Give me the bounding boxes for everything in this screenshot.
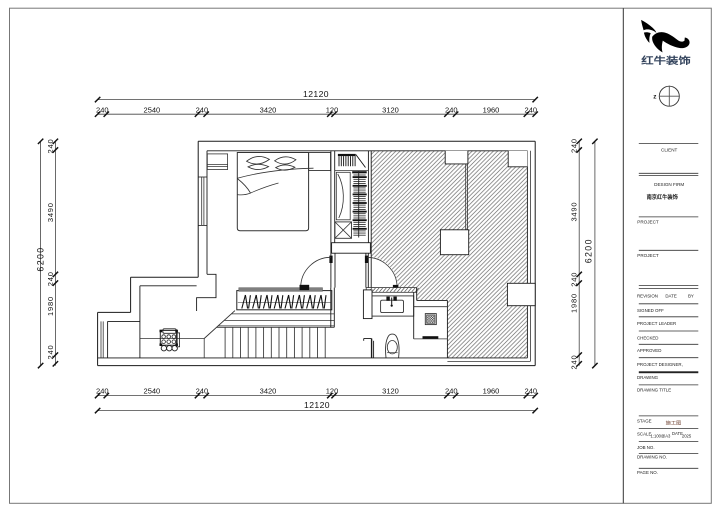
svg-text:6200: 6200 (36, 246, 46, 271)
svg-text:6200: 6200 (584, 238, 594, 263)
svg-text:红牛装饰: 红牛装饰 (641, 55, 691, 67)
svg-text:DRAWING TITLE: DRAWING TITLE (637, 388, 671, 393)
svg-text:REVISION: REVISION (637, 294, 658, 299)
svg-text:240: 240 (569, 272, 578, 287)
svg-text:2025: 2025 (682, 433, 692, 438)
svg-text:PROJECT DESIGNER,: PROJECT DESIGNER, (637, 362, 683, 367)
svg-text:DRAWING NO.: DRAWING NO. (637, 455, 667, 460)
svg-text:BY: BY (688, 294, 694, 299)
svg-text:南京红牛装饰: 南京红牛装饰 (647, 193, 679, 201)
svg-text:CLIENT: CLIENT (661, 147, 678, 152)
svg-text:PROJECT: PROJECT (637, 220, 659, 225)
svg-text:240: 240 (445, 106, 458, 115)
svg-text:PAGE NO.: PAGE NO. (637, 470, 658, 475)
svg-text:3490: 3490 (569, 202, 578, 222)
svg-text:JOB NO.: JOB NO. (637, 445, 655, 450)
svg-text:120: 120 (326, 106, 339, 115)
svg-text:240: 240 (46, 139, 55, 154)
svg-text:3120: 3120 (382, 106, 399, 115)
svg-text:12120: 12120 (304, 400, 330, 410)
svg-text:SIGNED OFF: SIGNED OFF (637, 308, 664, 313)
svg-text:240: 240 (96, 386, 109, 395)
svg-text:3490: 3490 (46, 202, 55, 222)
svg-text:DRAWING: DRAWING (637, 375, 659, 380)
svg-text:240: 240 (46, 271, 55, 286)
svg-text:2540: 2540 (144, 386, 161, 395)
svg-text:STAGE: STAGE (637, 419, 652, 424)
svg-text:240: 240 (445, 386, 458, 395)
svg-text:240: 240 (196, 106, 209, 115)
svg-text:1960: 1960 (483, 386, 500, 395)
svg-text:APPROVED: APPROVED (637, 348, 661, 353)
svg-text:PROJECT LEADER: PROJECT LEADER (637, 321, 676, 326)
svg-text:SCALE: SCALE (637, 431, 651, 436)
svg-text:240: 240 (196, 386, 209, 395)
svg-text:240: 240 (525, 106, 538, 115)
svg-text:120: 120 (326, 386, 339, 395)
svg-text:DESIGN FIRM: DESIGN FIRM (654, 182, 684, 187)
svg-text:12120: 12120 (303, 89, 329, 99)
svg-text:240: 240 (569, 355, 578, 370)
svg-text:240: 240 (96, 106, 109, 115)
svg-text:3420: 3420 (260, 106, 277, 115)
svg-text:240: 240 (46, 345, 55, 360)
svg-text:240: 240 (569, 138, 578, 153)
svg-text:1:100@A3: 1:100@A3 (651, 433, 672, 438)
svg-text:PROJECT: PROJECT (637, 253, 659, 258)
svg-text:1980: 1980 (46, 296, 55, 316)
svg-text:施工图: 施工图 (666, 420, 682, 427)
svg-text:3120: 3120 (382, 386, 399, 395)
svg-text:1980: 1980 (569, 293, 578, 313)
svg-text:1960: 1960 (483, 106, 500, 115)
svg-text:240: 240 (525, 386, 538, 395)
svg-text:CHECKED: CHECKED (637, 335, 658, 340)
svg-text:3420: 3420 (260, 386, 277, 395)
svg-text:DATE: DATE (665, 294, 676, 299)
svg-text:2540: 2540 (144, 106, 161, 115)
